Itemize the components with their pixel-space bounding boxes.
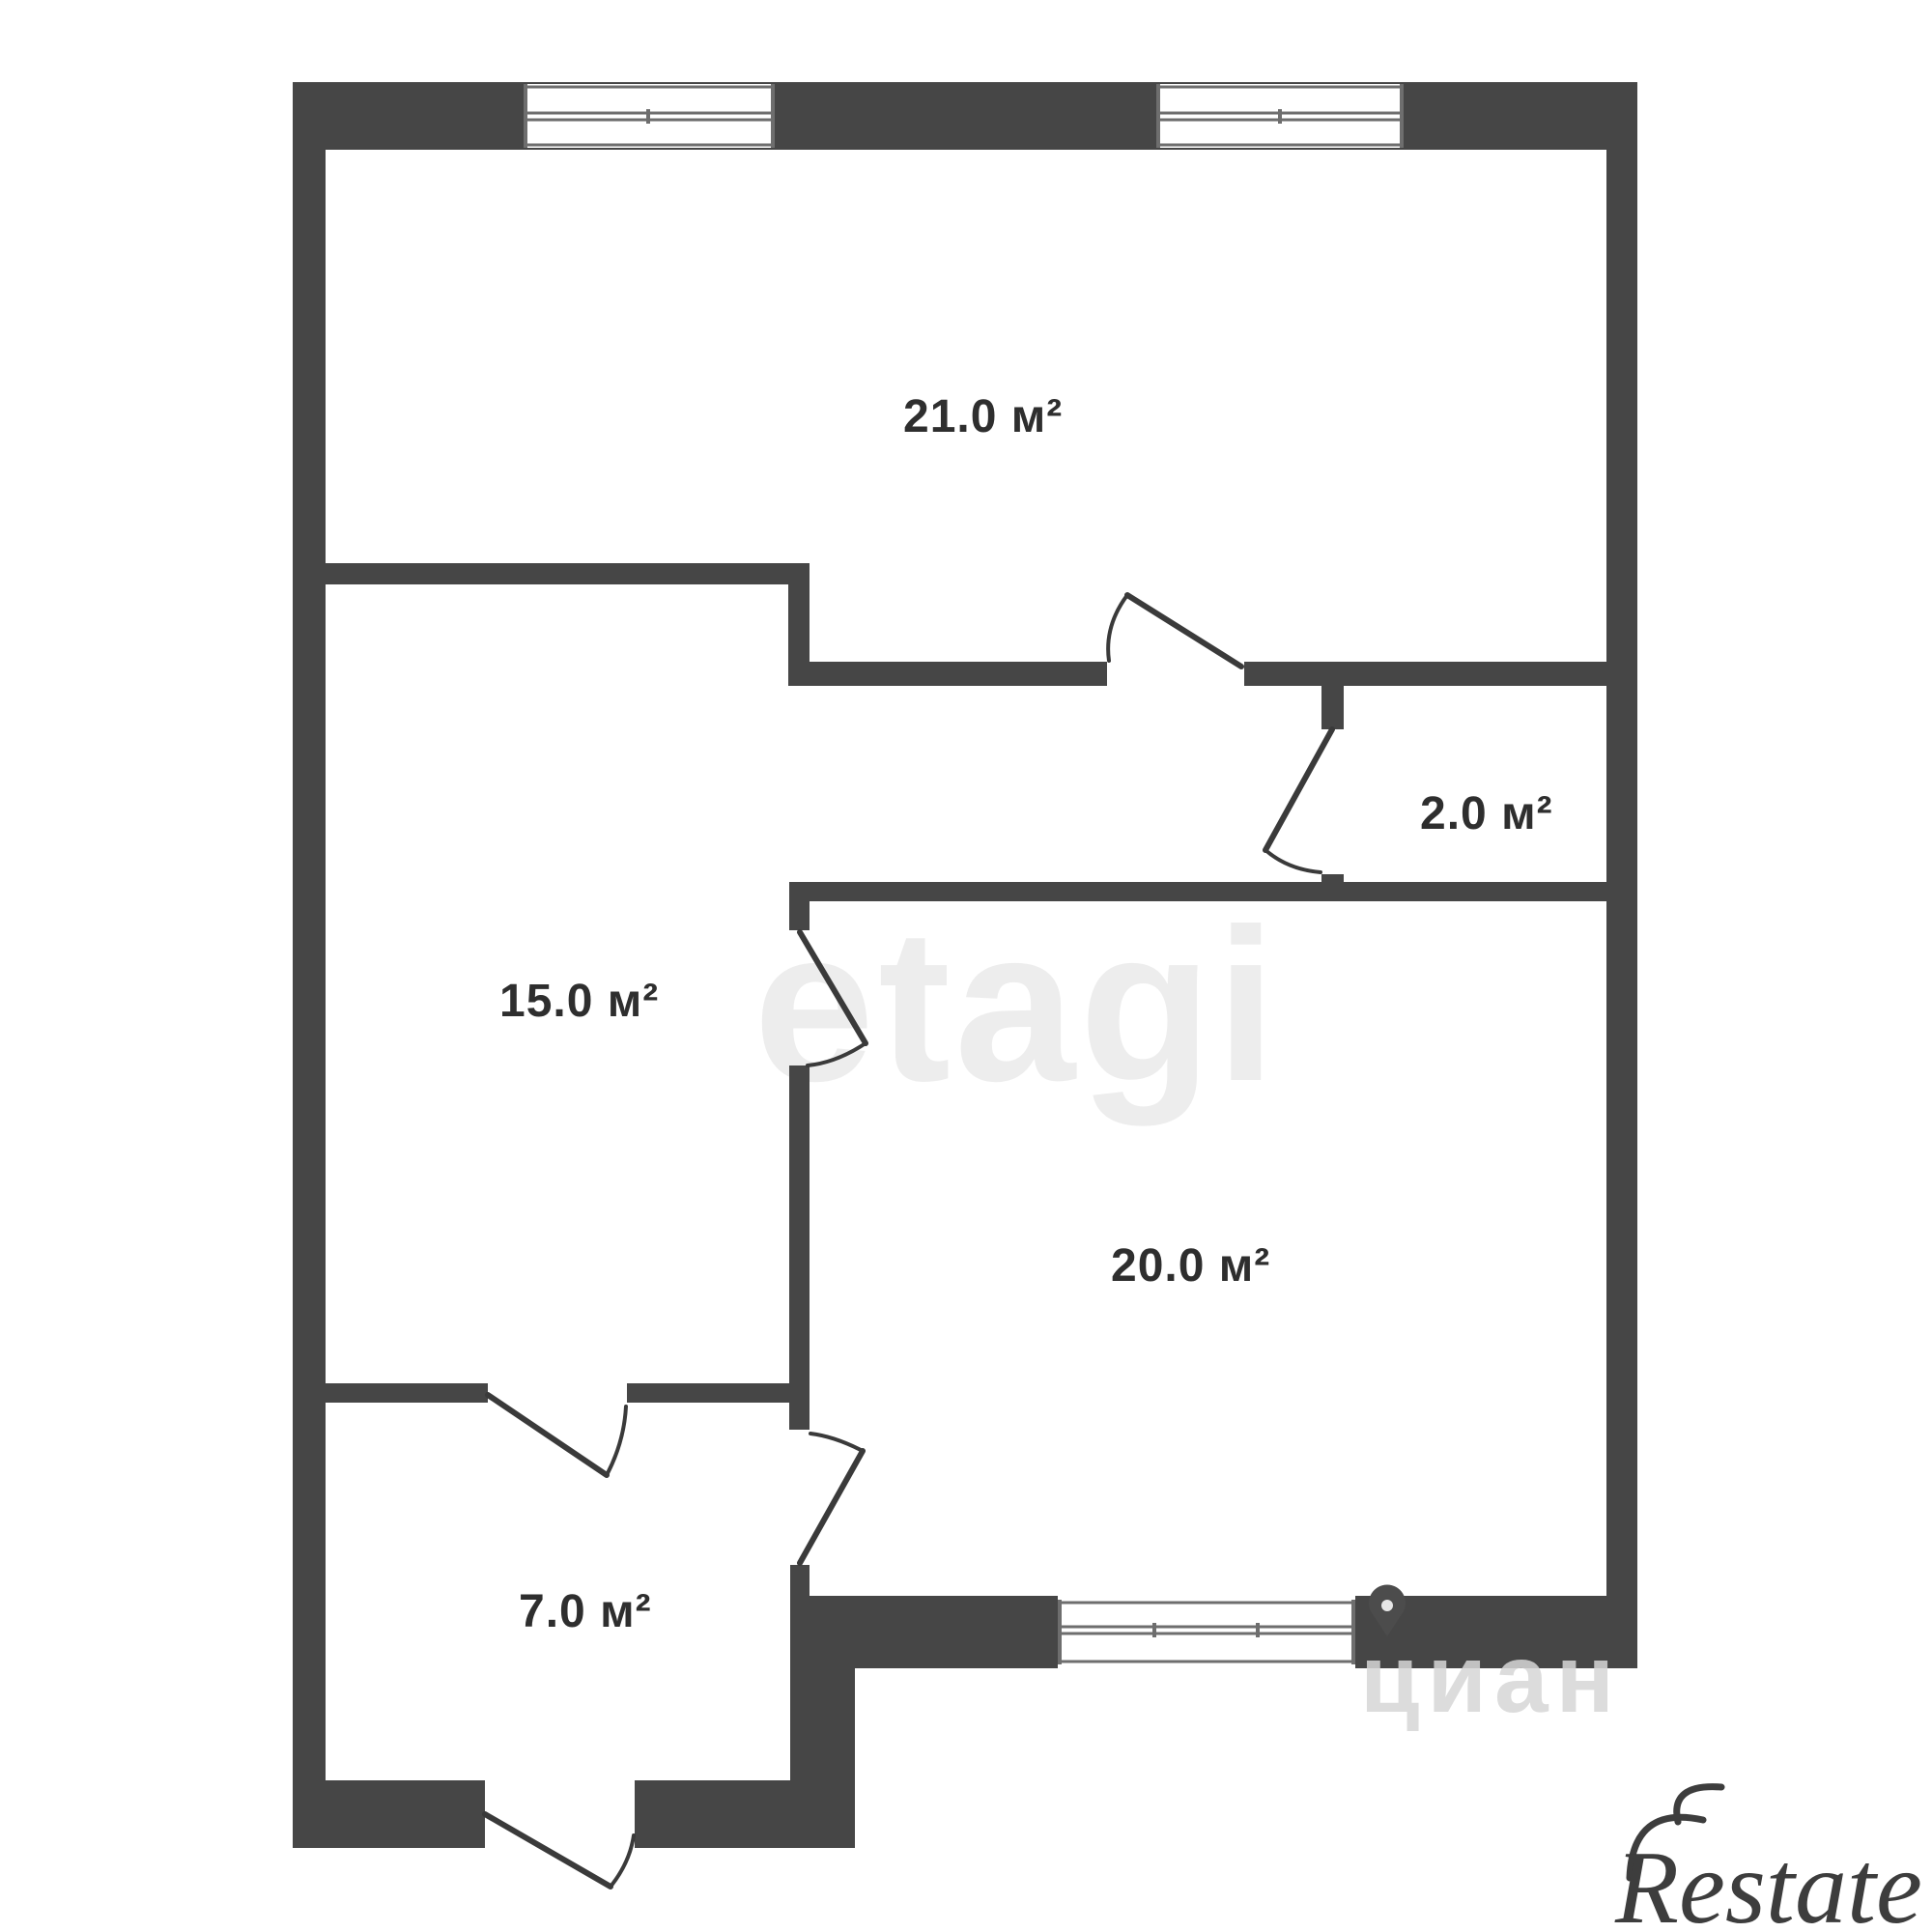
- wall-exterior-bottom-hall-left: [293, 1780, 485, 1848]
- wall-corridor-bottom: [789, 882, 1606, 901]
- wall-room21-bottom-right-b: [1244, 662, 1606, 686]
- wall-room21-bottom-right-a: [788, 662, 1107, 686]
- label-closet-2: 2.0 м²: [1420, 788, 1553, 839]
- wall-exterior-left: [293, 82, 326, 1848]
- floor-plan: etagi: [0, 0, 1932, 1932]
- wall-hall-top-left: [326, 1383, 488, 1403]
- label-hall-7: 7.0 м²: [519, 1586, 652, 1637]
- pin-dot: [1381, 1600, 1393, 1611]
- window-top-left: [524, 84, 775, 148]
- wall-exterior-bottom-hall-right: [635, 1780, 855, 1848]
- logo-restate-text: Restate: [1614, 1831, 1922, 1932]
- wall-exterior-right: [1606, 82, 1637, 1668]
- watermark-cian-text: циан: [1360, 1625, 1622, 1733]
- wall-exterior-top: [293, 82, 1637, 150]
- wall-divider-lower: [789, 1065, 810, 1430]
- label-room-20: 20.0 м²: [1111, 1240, 1270, 1292]
- label-room-21: 21.0 м²: [903, 391, 1063, 442]
- wall-hall-top-right: [627, 1383, 790, 1403]
- window-bottom: [1058, 1600, 1355, 1664]
- wall-closet-left-upper: [1321, 662, 1344, 729]
- label-room-15: 15.0 м²: [499, 976, 659, 1027]
- wall-room21-bottom-left: [326, 563, 810, 584]
- window-top-right: [1156, 84, 1404, 148]
- wall-divider-upper: [789, 901, 810, 930]
- wall-entrance-jamb: [790, 1565, 810, 1596]
- watermark-etagi: etagi: [753, 883, 1280, 1126]
